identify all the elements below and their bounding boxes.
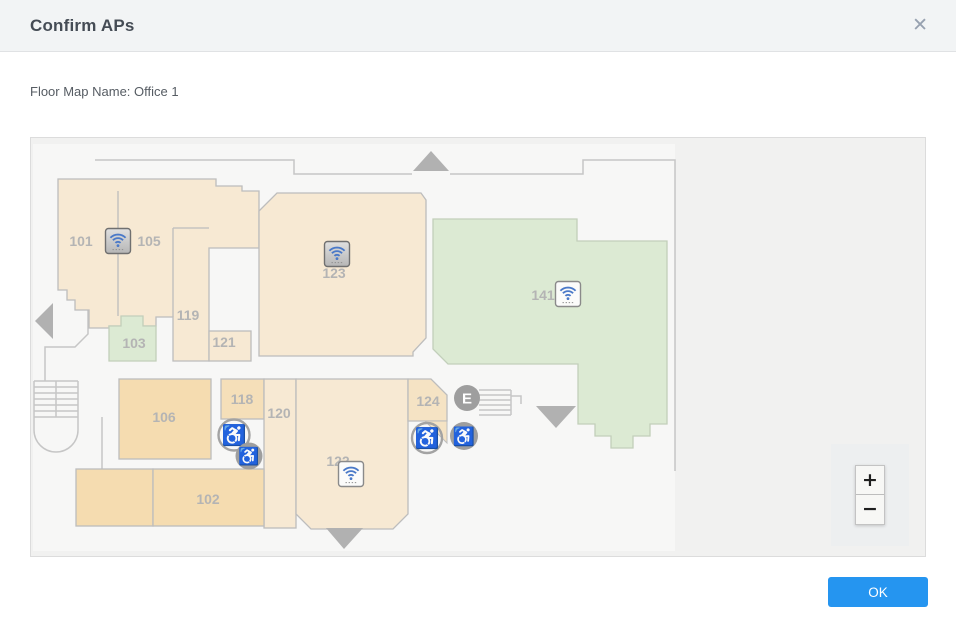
dialog-header: Confirm APs ✕ <box>0 0 956 52</box>
ap-icon-105[interactable] <box>106 229 131 254</box>
ap-icon-141[interactable] <box>556 282 581 307</box>
svg-text:E: E <box>462 391 472 408</box>
room-label-121: 121 <box>212 334 236 350</box>
room-label-106: 106 <box>152 409 176 425</box>
room-label-119: 119 <box>177 307 200 323</box>
room-unlabeled <box>76 469 153 526</box>
elevator-icon: E <box>454 385 480 411</box>
room-label-118: 118 <box>231 391 254 407</box>
close-icon[interactable]: ✕ <box>908 12 932 39</box>
room-label-120: 120 <box>267 405 291 421</box>
svg-text:♿: ♿ <box>238 446 259 466</box>
svg-text:♿: ♿ <box>222 423 247 447</box>
room-label-102: 102 <box>196 491 220 507</box>
room-label-123: 123 <box>322 265 346 281</box>
room-label-105: 105 <box>137 233 161 249</box>
room-122 <box>296 379 408 529</box>
zoom-control: + − <box>831 444 909 546</box>
floor-map-image: ♿ ♿ ♿ E ♿ 101 105 119 103 121 123 141 10… <box>31 138 925 556</box>
room-label-124: 124 <box>416 393 440 409</box>
wheelchair-filled-icon: ♿ <box>236 443 263 470</box>
svg-text:♿: ♿ <box>453 426 475 447</box>
zoom-out-button[interactable]: − <box>856 495 884 524</box>
room-label-141: 141 <box>531 287 555 303</box>
zoom-in-button[interactable]: + <box>856 466 884 495</box>
floor-map-name-label: Floor Map Name: Office 1 <box>30 84 179 99</box>
ap-icon-122[interactable] <box>339 462 364 487</box>
room-label-103: 103 <box>122 335 146 351</box>
ok-button[interactable]: OK <box>828 577 928 607</box>
wheelchair-filled-icon: ♿ <box>450 422 478 450</box>
floor-map-viewport[interactable]: ♿ ♿ ♿ E ♿ 101 105 119 103 121 123 141 10… <box>30 137 926 557</box>
wheelchair-outline-icon: ♿ <box>412 423 442 453</box>
ap-icon-123[interactable] <box>325 242 350 267</box>
svg-text:♿: ♿ <box>415 426 440 450</box>
dialog-title: Confirm APs <box>30 16 135 36</box>
room-120 <box>264 379 296 528</box>
room-label-101: 101 <box>69 233 93 249</box>
